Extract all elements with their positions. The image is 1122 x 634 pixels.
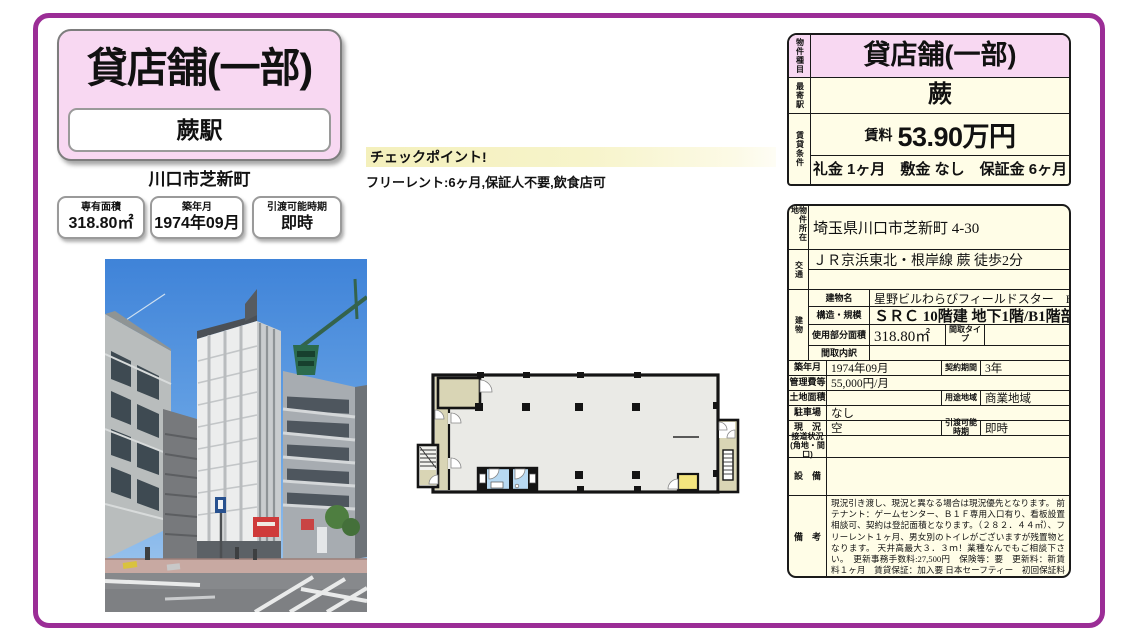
stat-label: 引渡可能時期 [267, 202, 327, 214]
lease-terms-label: 賃貸条件 [789, 114, 811, 184]
city-label: 川口市芝新町 [57, 165, 342, 190]
checkpoint-body: フリーレント:6ヶ月,保証人不要,飲食店可 [366, 172, 776, 191]
stat-value: 318.80㎡ [69, 214, 134, 233]
stat-box-area: 専有面積 318.80㎡ [57, 196, 145, 239]
stat-box-built: 築年月 1974年09月 [150, 196, 244, 239]
layout-type-value [985, 325, 1071, 345]
row-access: 交通 ＪＲ京浜東北・根岸線 蕨 徒歩2分 [789, 249, 1069, 289]
remarks-label: 備 考 [789, 496, 827, 578]
parking-label: 駐車場 [789, 406, 827, 420]
handover-label: 引渡可能時期 [941, 421, 981, 435]
nearest-station-label: 最寄駅 [789, 78, 811, 113]
access-value: ＪＲ京浜東北・根岸線 蕨 徒歩2分 [809, 250, 1069, 270]
row-parking: 駐車場 なし [789, 405, 1069, 420]
stat-label: 専有面積 [81, 202, 121, 214]
floor-area-label: 使用部分面積 [809, 325, 870, 345]
equipment-label: 設 備 [789, 458, 827, 495]
rent-label: 賃料 [864, 125, 892, 145]
row-layout-detail: 間取内訳 [809, 345, 1071, 360]
equipment-value [827, 458, 1069, 495]
mgmt-fee-label: 管理費等 [789, 376, 827, 390]
detail-table: 物件所在地 埼玉県川口市芝新町 4-30 交通 ＪＲ京浜東北・根岸線 蕨 徒歩2… [787, 204, 1071, 578]
property-title-card: 貸店舗(一部) 蕨駅 [57, 29, 342, 161]
row-remarks: 備 考 現況引き渡し、現況と異なる場合は現況優先となります。 前テナント：ゲーム… [789, 495, 1069, 578]
remarks-value: 現況引き渡し、現況と異なる場合は現況優先となります。 前テナント：ゲームセンター… [827, 496, 1069, 578]
property-photo [105, 259, 367, 612]
access-label: 交通 [789, 250, 809, 289]
summary-table: 物件種目 貸店舗(一部) 最寄駅 蕨 賃貸条件 賃料 53.90万円 礼金 1ヶ… [787, 33, 1071, 186]
stat-box-handover: 引渡可能時期 即時 [252, 196, 342, 239]
floor-area-value: 318.80㎡ [870, 325, 945, 345]
contract-value: 3年 [981, 361, 1069, 375]
checkpoint-title: チェックポイント! [370, 149, 487, 165]
row-status: 現 況 空 引渡可能時期 即時 [789, 420, 1069, 435]
layout-detail-value [870, 346, 1071, 360]
row-building: 建物 建物名 星野ビルわらびフィールドスター B1F 構造・規模 ＳＲＣ 10階… [789, 289, 1069, 360]
status-value: 空 [827, 421, 941, 435]
building-label: 建物 [789, 290, 809, 360]
row-built: 築年月 1974年09月 契約期間 3年 [789, 360, 1069, 375]
stat-value: 1974年09月 [154, 214, 239, 233]
row-nearest-station: 最寄駅 蕨 [789, 77, 1069, 113]
land-value [827, 391, 941, 405]
stat-label: 築年月 [182, 202, 212, 214]
contract-label: 契約期間 [941, 361, 981, 375]
nearest-station-value: 蕨 [811, 78, 1069, 113]
property-type-value: 貸店舗(一部) [811, 35, 1069, 77]
road-label: 接道状況 (角地・間口) [789, 436, 827, 457]
access-value-2 [809, 270, 1069, 289]
property-title: 貸店舗(一部) [59, 31, 340, 105]
row-property-type: 物件種目 貸店舗(一部) [789, 35, 1069, 77]
layout-type-label: 間取タイプ [945, 325, 985, 345]
row-lease-terms: 賃貸条件 賃料 53.90万円 礼金 1ヶ月 敷金 なし 保証金 6ヶ月 [789, 113, 1069, 184]
row-building-name: 建物名 星野ビルわらびフィールドスター B1F [809, 290, 1071, 306]
rent-value: 53.90万円 [897, 115, 1015, 154]
zoning-value: 商業地域 [981, 391, 1069, 405]
row-equipment: 設 備 [789, 457, 1069, 495]
row-land: 土地面積 用途地域 商業地域 [789, 390, 1069, 405]
checkpoint-title-bar: チェックポイント! [366, 147, 776, 167]
handover-value: 即時 [981, 421, 1069, 435]
row-road: 接道状況 (角地・間口) [789, 435, 1069, 457]
address-label: 物件所在地 [789, 206, 809, 249]
row-floor-area: 使用部分面積 318.80㎡ 間取タイプ [809, 324, 1071, 345]
built-value: 1974年09月 [827, 361, 941, 375]
row-structure: 構造・規模 ＳＲＣ 10階建 地下1階/B1階部分 [809, 306, 1071, 324]
floor-plan-svg [405, 358, 745, 496]
built-label: 築年月 [789, 361, 827, 375]
exterior-photo-svg [105, 259, 367, 612]
stat-value: 即時 [281, 214, 313, 233]
structure-label: 構造・規模 [809, 307, 870, 324]
row-mgmt-fee: 管理費等 55,000円/月 [789, 375, 1069, 390]
layout-detail-label: 間取内訳 [809, 346, 870, 360]
land-label: 土地面積 [789, 391, 827, 405]
mgmt-fee-value: 55,000円/月 [827, 376, 1069, 390]
property-type-label: 物件種目 [789, 35, 811, 77]
road-value [827, 436, 1069, 457]
address-value: 埼玉県川口市芝新町 4-30 [809, 206, 1069, 249]
rent-line: 賃料 53.90万円 [811, 114, 1069, 156]
building-name-value: 星野ビルわらびフィールドスター B1F [870, 290, 1071, 306]
structure-value: ＳＲＣ 10階建 地下1階/B1階部分 [870, 307, 1071, 324]
fees-line: 礼金 1ヶ月 敷金 なし 保証金 6ヶ月 [811, 156, 1069, 184]
row-address: 物件所在地 埼玉県川口市芝新町 4-30 [789, 206, 1069, 249]
building-name-label: 建物名 [809, 290, 870, 306]
floor-plan [405, 358, 745, 496]
station-badge: 蕨駅 [68, 108, 331, 152]
zoning-label: 用途地域 [941, 391, 981, 405]
